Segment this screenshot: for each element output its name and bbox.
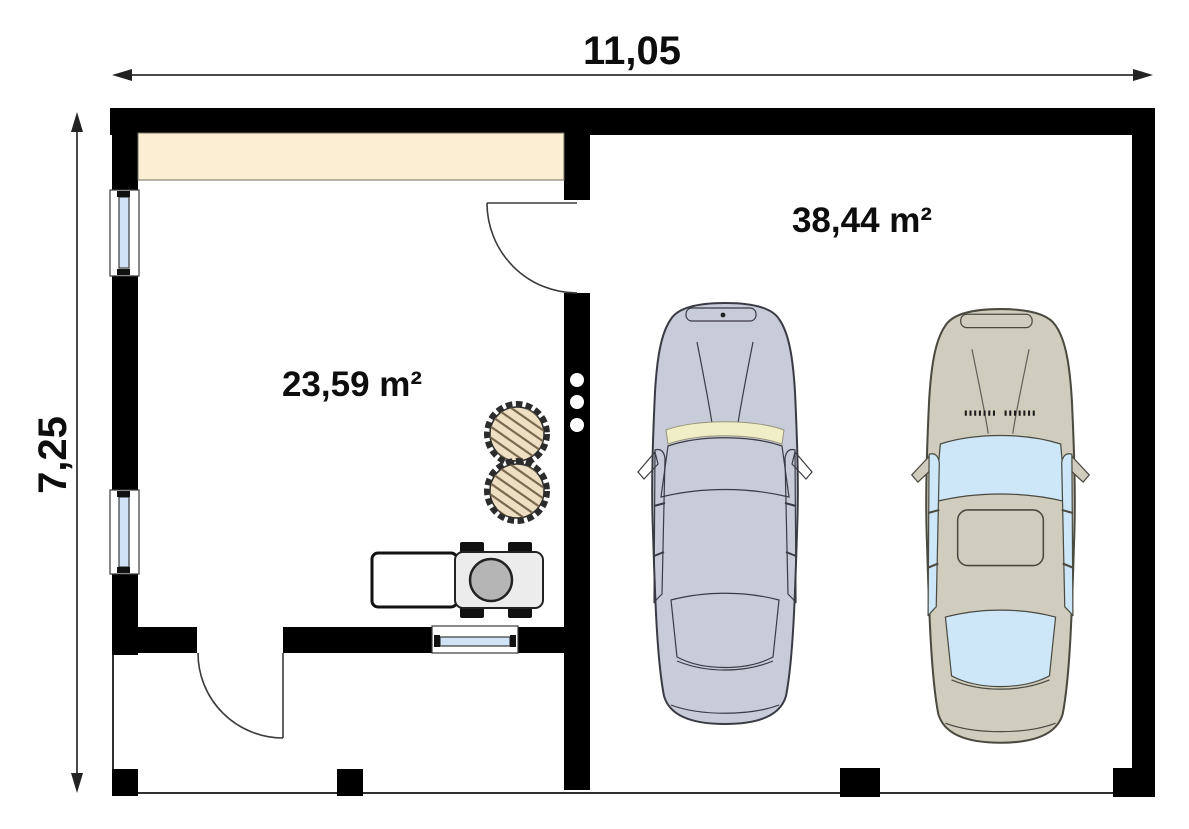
wall-hole [570, 395, 584, 409]
garage-area-label: 38,44 m² [792, 201, 932, 240]
window-glass [440, 637, 510, 646]
round-table-lower [476, 451, 558, 531]
window-glass [119, 197, 129, 268]
window-sill-tick [117, 191, 130, 197]
entry-door [198, 653, 283, 738]
window-left-lower [110, 490, 139, 574]
porch-post-left [112, 769, 138, 796]
windshield [935, 436, 1066, 502]
car-body [652, 303, 798, 724]
arrow-down-icon [71, 773, 83, 793]
wall-cabinet-band [138, 133, 564, 180]
bottom-wall-segment-3 [518, 627, 564, 653]
interior-wall-top [564, 108, 590, 200]
floor-plan-canvas: 11,05 7,25 [0, 0, 1189, 829]
workshop-area-label: 23,59 m² [282, 365, 422, 404]
arrow-right-icon [1133, 69, 1153, 81]
wall-hole [570, 418, 584, 432]
garage-pillar-right [1113, 768, 1155, 797]
hood-ornament [721, 313, 726, 318]
top-wall [110, 108, 1155, 135]
window-glass [119, 497, 129, 567]
interior-wall-bottom [564, 293, 590, 790]
window-sill-tick [117, 269, 130, 275]
wall-hole [570, 373, 584, 387]
arrow-up-icon [71, 112, 83, 132]
bottom-wall-segment-2 [283, 627, 432, 653]
steering-wheel [470, 559, 512, 601]
right-wall [1132, 108, 1155, 768]
floor-plan: 11,05 7,25 [0, 0, 1189, 829]
window-sill-tick [117, 491, 130, 497]
window-sill-tick [117, 567, 130, 573]
interior-door [487, 203, 577, 293]
door-swing-arc [198, 653, 283, 738]
garage-pillar-middle [840, 768, 880, 797]
horizontal-dimension: 11,05 [112, 29, 1153, 81]
car-left [638, 303, 812, 724]
window-bottom [432, 626, 518, 653]
arrow-left-icon [112, 69, 132, 81]
door-swing-arc [487, 203, 577, 293]
car-right [912, 309, 1089, 743]
bottom-wall-segment-1 [112, 627, 197, 653]
trailer-bed [372, 553, 457, 607]
vertical-dimension: 7,25 [31, 112, 83, 793]
window-left-upper [110, 190, 139, 276]
garden-tractor [372, 542, 543, 618]
porch-post-middle [337, 769, 363, 796]
window-sill-tick [434, 635, 440, 647]
window-sill-tick [510, 635, 516, 647]
width-dimension-label: 11,05 [583, 29, 681, 73]
rear-window [945, 610, 1055, 686]
height-dimension-label: 7,25 [31, 416, 75, 494]
